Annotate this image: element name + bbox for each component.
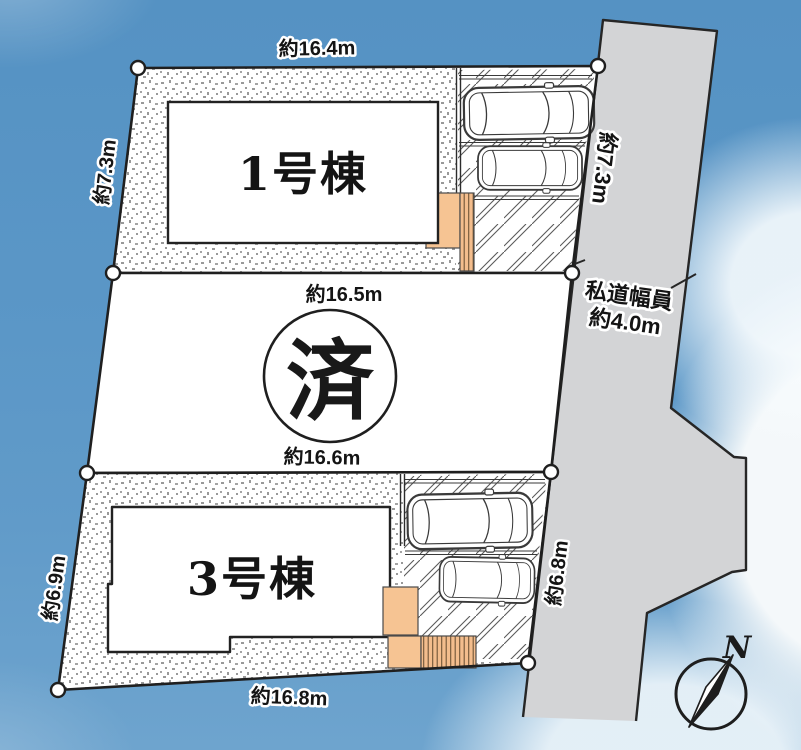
lot1-top-dim: 約16.4m xyxy=(278,35,355,60)
sold-stamp-label: 済 xyxy=(286,329,375,433)
corner-marker xyxy=(80,466,94,480)
lot3-bottom-dim: 約16.8m xyxy=(250,684,328,711)
lot1-building-label: 1号棟 xyxy=(238,147,368,201)
site-plan-canvas: 約7.3m 私道幅員 約4.0m 1号棟 約16.4m 約7.3m xyxy=(0,0,801,750)
compass: N xyxy=(676,630,753,729)
lot-2-sold: 済 約16.5m 約16.6m xyxy=(87,273,572,473)
corner-marker xyxy=(565,266,579,280)
lot2-top-dim: 約16.5m xyxy=(306,282,383,306)
lot3-building-label: 3号棟 xyxy=(187,552,317,606)
car-icon xyxy=(407,488,533,553)
lot2-bottom-dim: 約16.6m xyxy=(283,444,360,469)
corner-marker xyxy=(51,683,65,697)
compass-north-label: N xyxy=(722,630,753,666)
lot3-porch xyxy=(383,587,418,635)
car-icon xyxy=(463,82,594,144)
car-icon xyxy=(478,143,582,193)
site-plan-stage: 約7.3m 私道幅員 約4.0m 1号棟 約16.4m 約7.3m xyxy=(0,0,801,750)
corner-marker xyxy=(591,59,605,73)
corner-marker xyxy=(131,61,145,75)
lot3-porch xyxy=(388,636,421,668)
car-icon xyxy=(439,553,535,607)
corner-marker xyxy=(544,465,558,479)
corner-marker xyxy=(106,266,120,280)
lot-1: 1号棟 約16.4m 約7.3m xyxy=(89,35,598,273)
lot1-left-dim: 約7.3m xyxy=(89,138,121,206)
lot3-left-dim: 約6.9m xyxy=(38,554,71,622)
lot3-entrance-steps xyxy=(421,636,476,668)
corner-marker xyxy=(521,656,535,670)
lot-3: 3号棟 約6.9m 約16.8m 約6.8m xyxy=(38,472,573,710)
lot1-entrance-steps xyxy=(460,193,474,271)
